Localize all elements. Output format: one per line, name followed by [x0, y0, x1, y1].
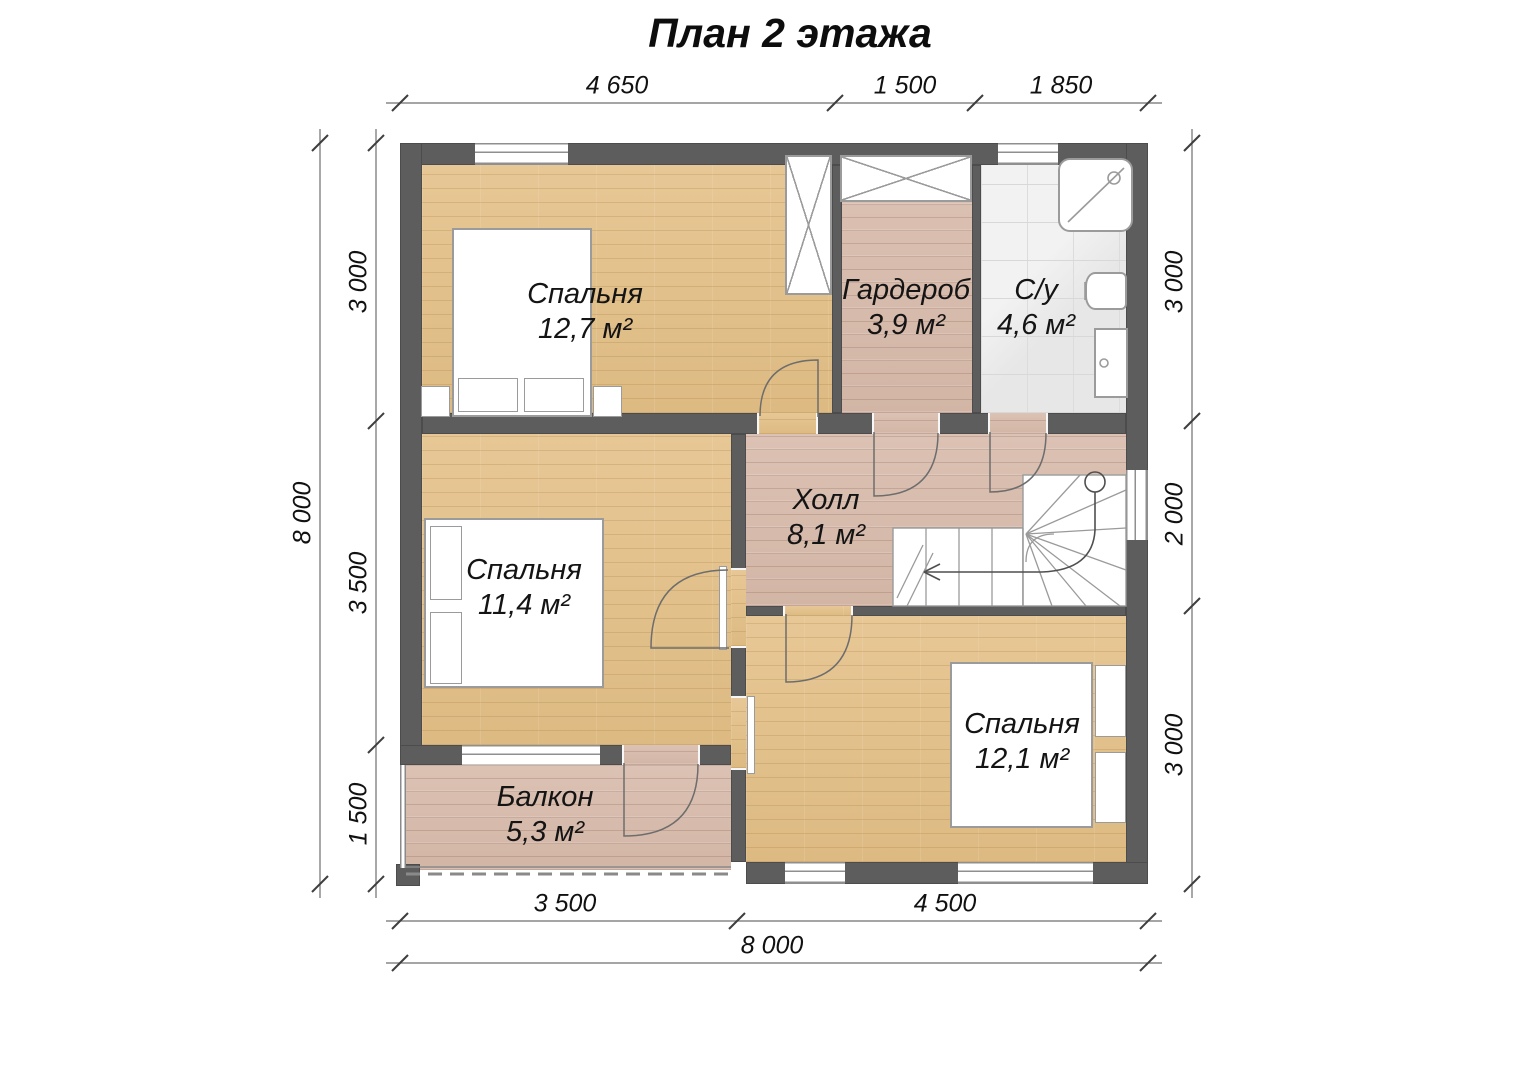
wall-outer-left — [400, 143, 422, 765]
room-area: 12,1 м² — [964, 742, 1080, 777]
room-label-bedroom-middle-left: Спальня 11,4 м² — [466, 553, 582, 623]
dim-right-2: 2 000 — [1161, 483, 1190, 546]
dim-left-3: 1 500 — [345, 783, 374, 846]
dim-bottom-2: 4 500 — [914, 890, 977, 919]
window-top-bedroom — [475, 143, 568, 165]
nightstand — [1095, 752, 1126, 823]
window-bottom-right — [958, 862, 1093, 884]
dim-left-1: 3 000 — [345, 251, 374, 314]
door-opening-bedroom-top-left — [757, 413, 818, 434]
floor-plan-page: План 2 этажа — [0, 0, 1532, 1080]
dim-top-3: 1 850 — [1030, 72, 1093, 101]
room-label-bedroom-top-left: Спальня 12,7 м² — [527, 277, 643, 347]
nightstand — [1095, 665, 1126, 737]
door-opening-bedroom-bottom — [783, 606, 853, 616]
door-opening-bathroom — [988, 413, 1048, 434]
nightstand — [593, 386, 622, 417]
room-area: 3,9 м² — [842, 308, 970, 343]
page-title: План 2 этажа — [648, 10, 932, 57]
room-name: Спальня — [964, 707, 1080, 742]
room-area: 4,6 м² — [997, 308, 1075, 343]
closet-bedroom-top-left — [785, 155, 832, 295]
window-bottom-left — [785, 862, 845, 884]
pillow — [524, 378, 584, 412]
pillow — [430, 612, 462, 684]
door-leaf-open — [747, 696, 755, 774]
door-opening-bedroom-middle — [731, 568, 746, 648]
door-leaf-open — [719, 566, 727, 650]
wall-interior-vertical-center — [731, 434, 746, 862]
door-opening-side — [731, 696, 746, 770]
wall-wardrobe-bathroom — [972, 165, 981, 413]
door-opening-balcony — [622, 745, 700, 765]
dim-top-2: 1 500 — [874, 72, 937, 101]
wall-bedroom-wardrobe — [832, 165, 842, 413]
pillow — [430, 526, 462, 600]
window-right-stairs — [1126, 470, 1148, 540]
shower-cabin — [1058, 158, 1133, 232]
dim-right-3: 3 000 — [1161, 714, 1190, 777]
room-name: Спальня — [527, 277, 643, 312]
dim-top-1: 4 650 — [586, 72, 649, 101]
dim-right-1: 3 000 — [1161, 251, 1190, 314]
room-label-hall: Холл 8,1 м² — [787, 483, 865, 553]
window-top-bathroom — [998, 143, 1058, 165]
room-label-bathroom: С/у 4,6 м² — [997, 273, 1075, 343]
room-label-balcony: Балкон 5,3 м² — [497, 780, 594, 850]
dim-left-2: 3 500 — [345, 552, 374, 615]
room-name: Балкон — [497, 780, 594, 815]
balcony-left-rail — [400, 765, 406, 868]
room-label-wardrobe: Гардероб 3,9 м² — [842, 273, 970, 343]
dim-bottom-total: 8 000 — [741, 932, 804, 961]
room-label-bedroom-bottom-right: Спальня 12,1 м² — [964, 707, 1080, 777]
room-area: 12,7 м² — [527, 312, 643, 347]
bathroom-vanity — [1094, 328, 1128, 398]
window-balcony — [462, 745, 600, 765]
dim-left-outer: 8 000 — [289, 482, 318, 545]
room-name: С/у — [997, 273, 1075, 308]
room-name: Спальня — [466, 553, 582, 588]
dim-bottom-1: 3 500 — [534, 890, 597, 919]
room-area: 8,1 м² — [787, 518, 865, 553]
room-name: Гардероб — [842, 273, 970, 308]
wardrobe-cabinet — [840, 155, 972, 202]
door-opening-wardrobe — [872, 413, 940, 434]
room-name: Холл — [787, 483, 865, 518]
pillow — [458, 378, 518, 412]
room-area: 5,3 м² — [497, 815, 594, 850]
toilet — [1085, 272, 1127, 310]
room-area: 11,4 м² — [466, 588, 582, 623]
nightstand — [421, 386, 450, 417]
